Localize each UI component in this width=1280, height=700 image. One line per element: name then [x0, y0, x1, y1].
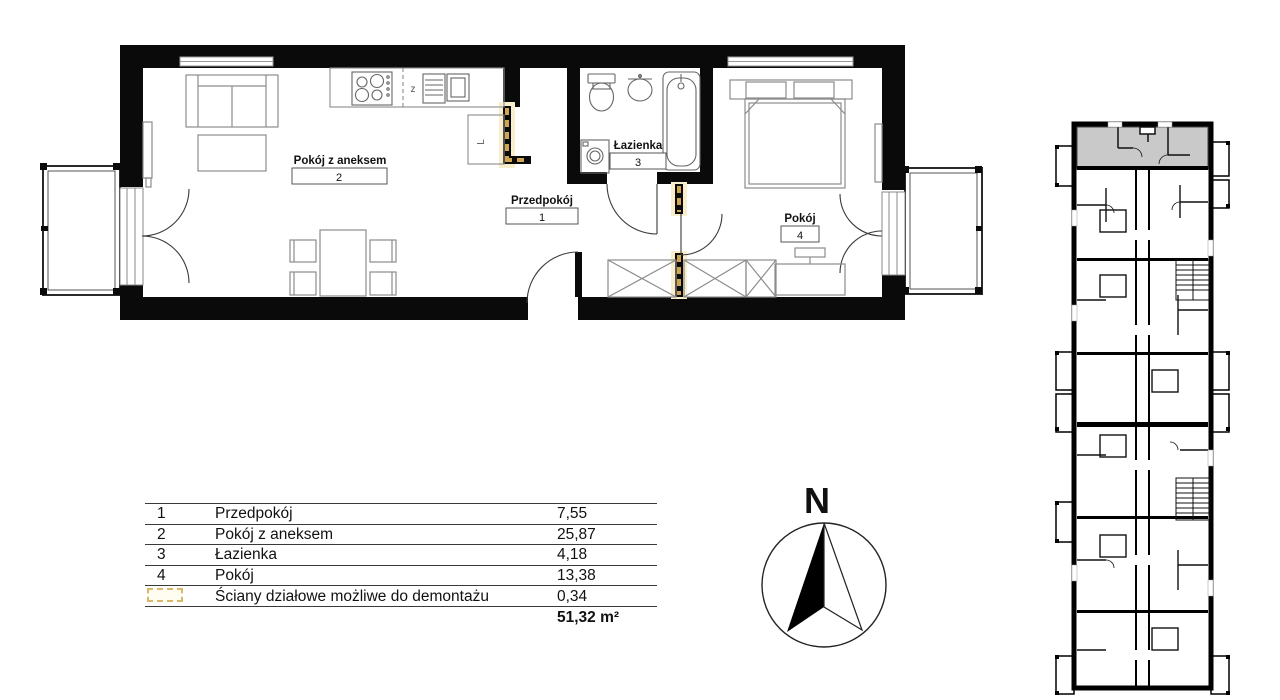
room4-name: Pokój [784, 213, 815, 225]
room2-number: 2 [336, 172, 342, 184]
room3-number: 3 [635, 157, 641, 169]
toilet-icon [588, 74, 615, 111]
stove-icon [352, 72, 392, 105]
demountable-wall-symbol [147, 588, 183, 602]
wardrobe-icon [608, 260, 776, 297]
kitchen-sink-label: z [411, 84, 416, 95]
desk-icon [775, 248, 845, 295]
overview-outer-walls [1074, 124, 1211, 688]
legend-row-area: 7,55 [557, 504, 657, 523]
legend-row-name: Łazienka [215, 545, 557, 564]
radiator-icon [875, 124, 882, 182]
legend-row-number: 2 [145, 525, 215, 544]
legend-row-name: Ściany działowe możliwe do demontażu [215, 587, 557, 606]
sofa-icon [186, 75, 278, 127]
kitchen-sink-icon [423, 74, 469, 103]
balcony-left [40, 163, 120, 295]
legend-row-name: Pokój z aneksem [215, 525, 557, 544]
legend-row-name: Pokój [215, 566, 557, 585]
dining-set-icon [290, 230, 396, 296]
room1-name: Przedpokój [511, 195, 573, 207]
room1-number: 1 [539, 212, 545, 224]
demountable-wall-symbol-cell [145, 586, 215, 607]
legend-row: 2 Pokój z aneksem 25,87 [145, 524, 657, 545]
legend-row-number: 1 [145, 504, 215, 523]
legend-row-number: 3 [145, 545, 215, 564]
compass-needle-dark [787, 523, 824, 632]
tv-cabinet-icon [143, 122, 152, 187]
room4-number: 4 [797, 230, 803, 242]
room3-name: Łazienka [614, 140, 663, 152]
kitchen-counter-icon [330, 68, 504, 107]
legend-table: 1 Przedpokój 7,55 2 Pokój z aneksem 25,8… [145, 503, 657, 629]
legend-row: 4 Pokój 13,38 [145, 565, 657, 586]
total-area-value: 51,32 m² [557, 608, 657, 627]
legend-row-area: 25,87 [557, 525, 657, 544]
legend-row-number: 4 [145, 566, 215, 585]
legend-total-row: 51,32 m² [145, 606, 657, 629]
legend-row: 3 Łazienka 4,18 [145, 544, 657, 565]
room-labels: Pokój z aneksem 2 Przedpokój 1 Łazienka … [292, 140, 819, 242]
legend-row-demountable: Ściany działowe możliwe do demontażu 0,3… [145, 585, 657, 606]
balcony-right [902, 166, 982, 294]
building-overview-plan [1048, 110, 1238, 698]
bathtub-icon [663, 72, 700, 170]
north-label: N [804, 480, 830, 521]
coffee-table-icon [198, 135, 266, 171]
legend-row-area: 4,18 [557, 545, 657, 564]
legend-row: 1 Przedpokój 7,55 [145, 503, 657, 524]
floor-plan-page: z L [0, 0, 1280, 700]
washbasin-icon [628, 74, 652, 101]
legend-row-name: Przedpokój [215, 504, 557, 523]
fridge-cabinet-label: L [476, 139, 487, 145]
washing-machine-icon [581, 140, 609, 173]
apartment-floor-plan: z L [30, 38, 990, 328]
legend-row-area: 13,38 [557, 566, 657, 585]
bed-icon [730, 80, 852, 188]
compass-needle-light [824, 523, 862, 630]
legend-row-area: 0,34 [557, 587, 657, 606]
north-arrow: N [755, 468, 895, 668]
room2-name: Pokój z aneksem [294, 155, 387, 167]
